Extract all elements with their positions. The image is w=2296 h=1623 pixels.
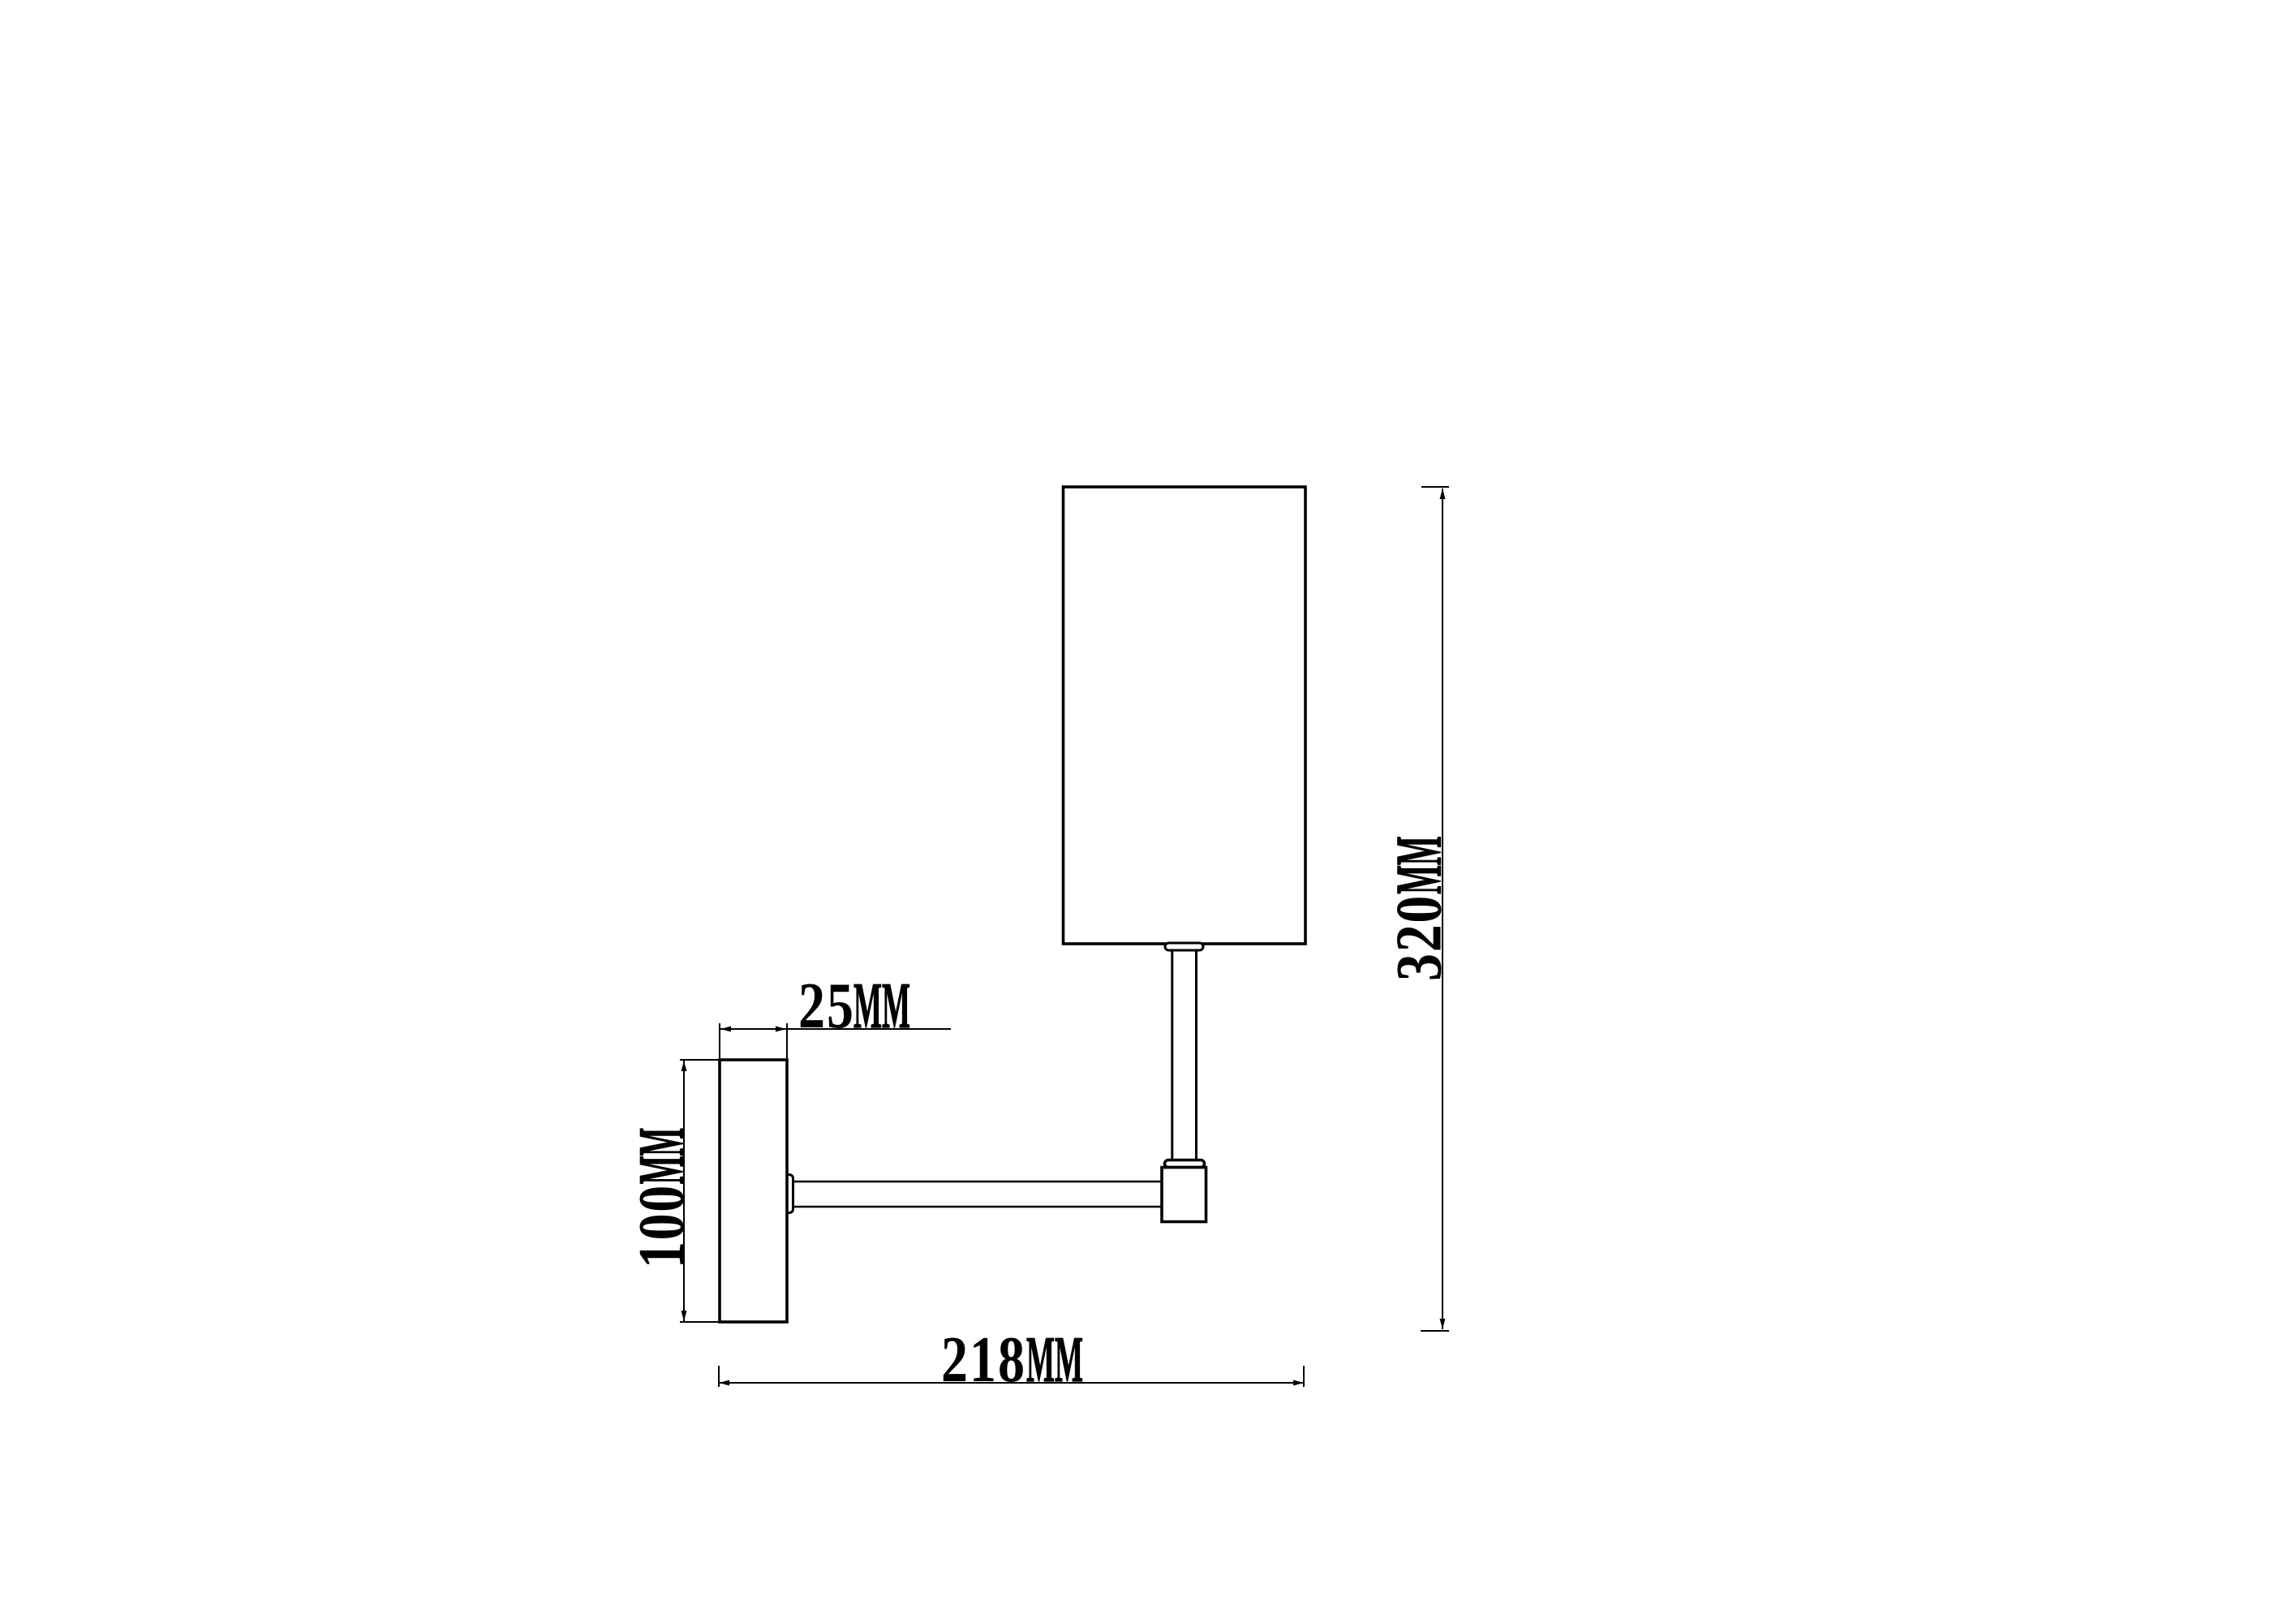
svg-text:1: 1	[626, 1242, 698, 1268]
svg-text:2: 2	[1384, 924, 1455, 952]
svg-text:M: M	[853, 971, 882, 1042]
svg-text:0: 0	[1384, 896, 1455, 923]
svg-text:M: M	[1384, 865, 1455, 894]
svg-text:2: 2	[798, 971, 825, 1042]
svg-text:M: M	[1384, 836, 1455, 865]
svg-text:8: 8	[998, 1324, 1025, 1396]
svg-text:0: 0	[626, 1186, 698, 1212]
svg-text:M: M	[882, 971, 910, 1042]
svg-text:5: 5	[827, 971, 853, 1042]
svg-text:M: M	[626, 1156, 698, 1184]
svg-text:1: 1	[970, 1324, 996, 1396]
svg-text:3: 3	[1384, 954, 1455, 981]
svg-text:2: 2	[941, 1324, 968, 1396]
svg-text:M: M	[1055, 1324, 1083, 1396]
svg-text:M: M	[626, 1128, 698, 1156]
svg-text:M: M	[1026, 1324, 1055, 1396]
svg-text:0: 0	[626, 1213, 698, 1240]
